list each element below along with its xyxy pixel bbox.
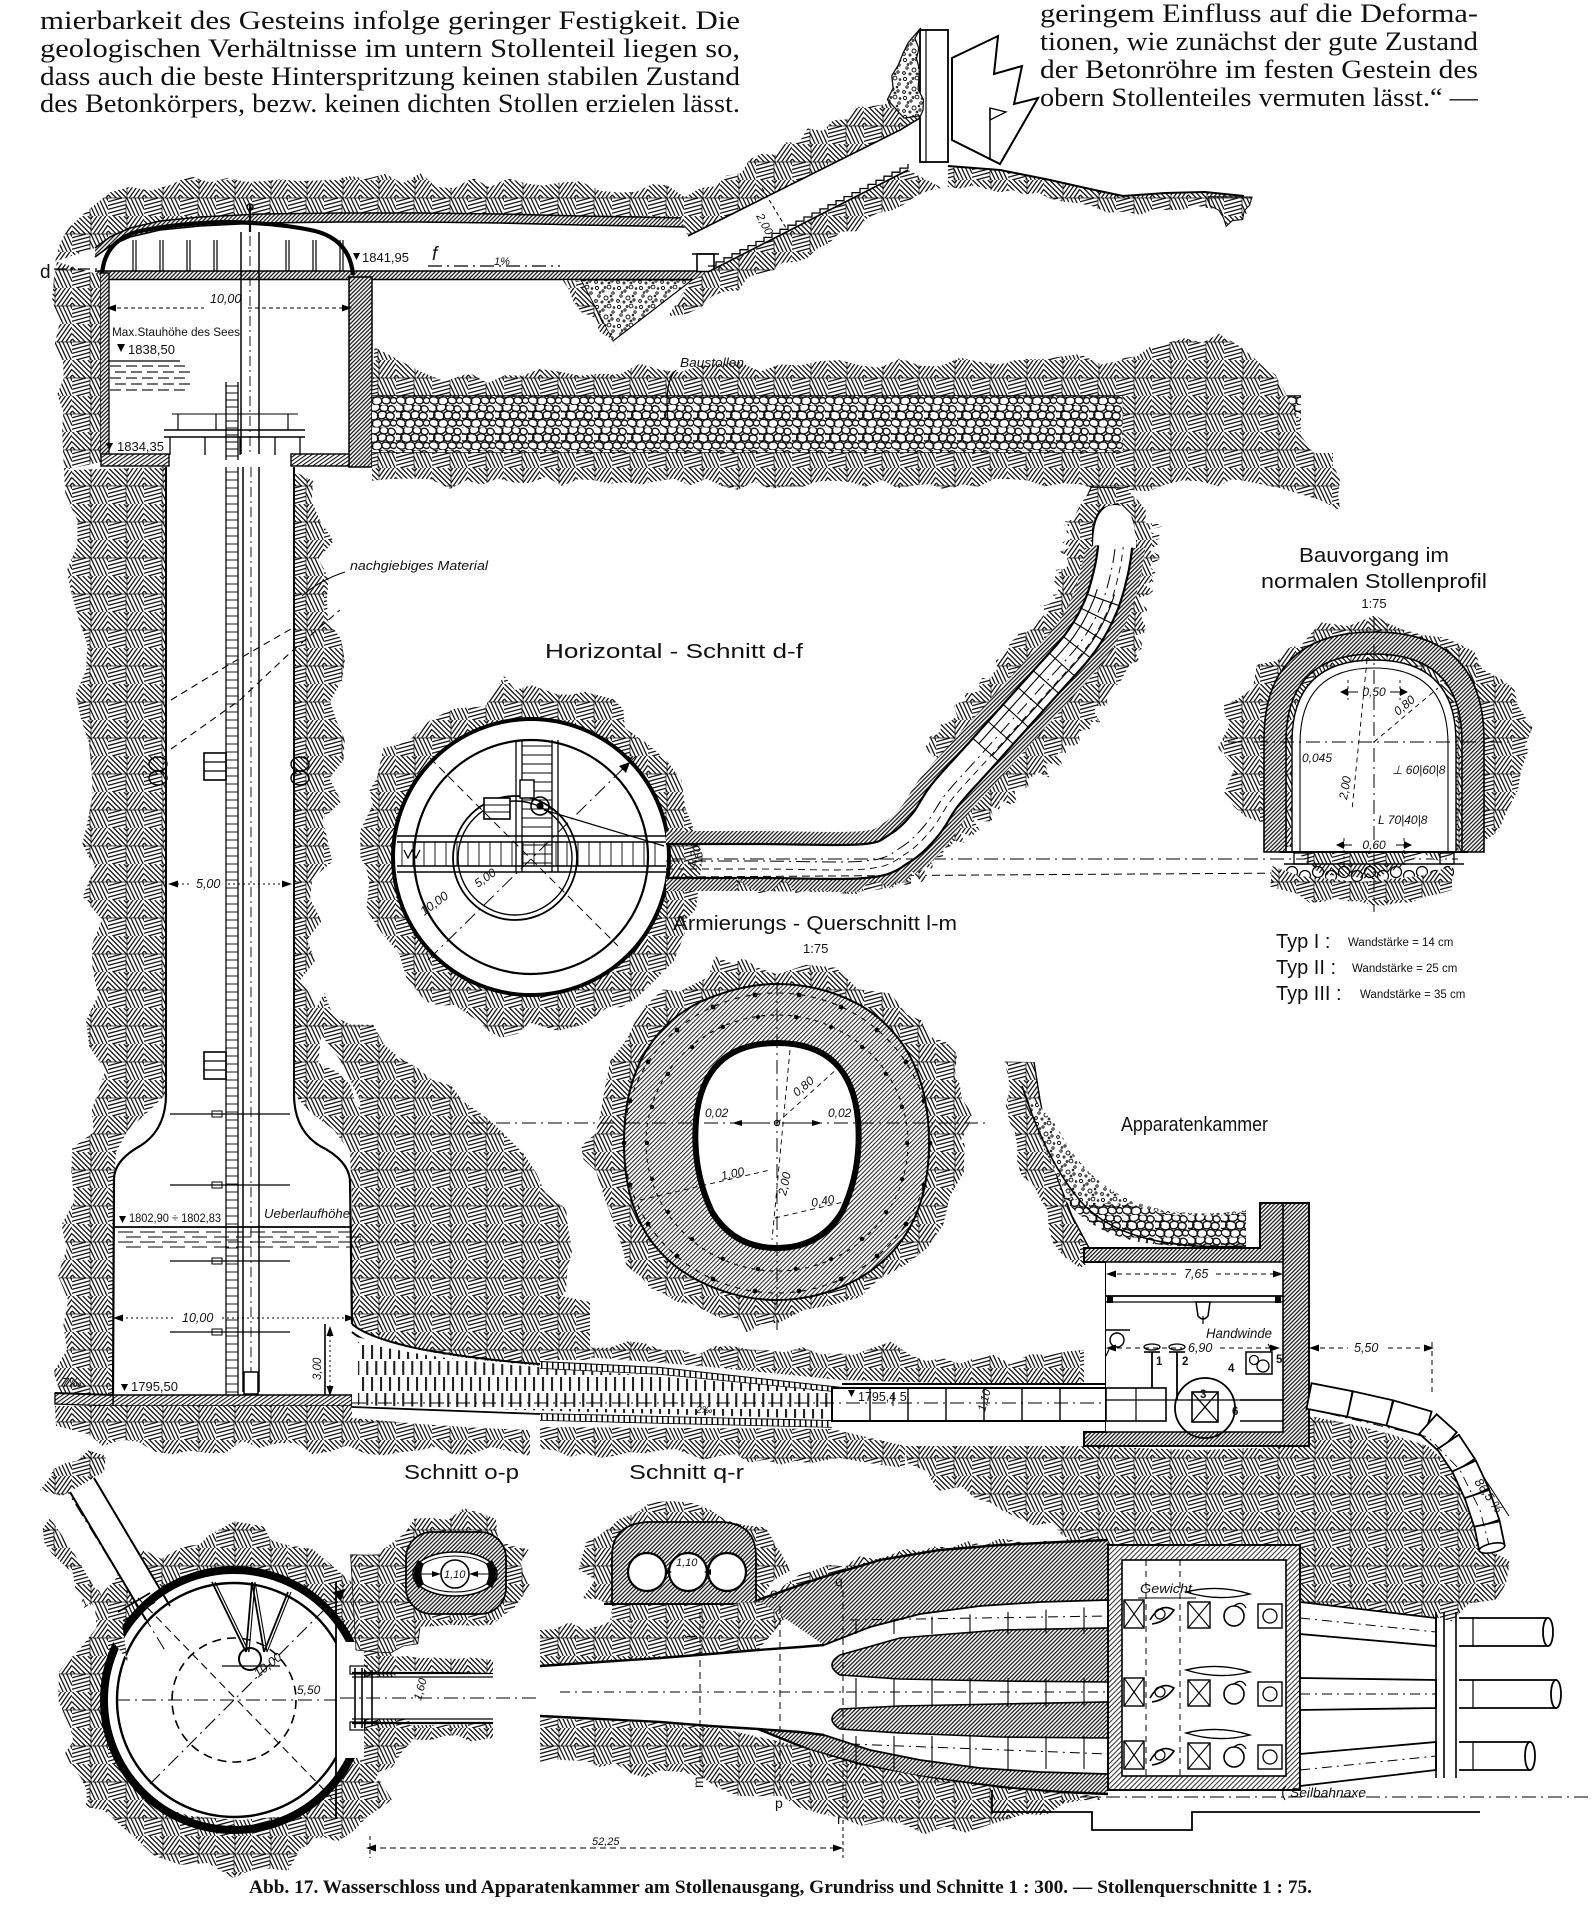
svg-text:Bauvorgang im: Bauvorgang im bbox=[1299, 545, 1449, 567]
svg-text:3: 3 bbox=[1200, 1389, 1206, 1401]
svg-text:Abb. 17. Wasserschloss und Ap: Abb. 17. Wasserschloss und Apparatenkamm… bbox=[249, 1877, 1312, 1898]
svg-text:3,00: 3,00 bbox=[312, 1357, 324, 1380]
svg-text:0,02: 0,02 bbox=[828, 1106, 852, 1120]
svg-text:7,65: 7,65 bbox=[1184, 1267, 1208, 1281]
svg-text:Horizontal - Schnitt d-f: Horizontal - Schnitt d-f bbox=[545, 641, 804, 663]
svg-text:dass auch die beste Hinterspri: dass auch die beste Hinterspritzung kein… bbox=[40, 62, 740, 91]
svg-text:Gewicht: Gewicht bbox=[1140, 1582, 1193, 1596]
svg-text:nachgiebiges Material: nachgiebiges Material bbox=[350, 558, 489, 573]
svg-text:0,045: 0,045 bbox=[1302, 751, 1332, 765]
svg-text:5,00: 5,00 bbox=[196, 877, 220, 891]
svg-text:1:75: 1:75 bbox=[1361, 596, 1386, 611]
svg-text:1841,95: 1841,95 bbox=[362, 250, 409, 265]
svg-text:Typ I :: Typ I : bbox=[1276, 931, 1330, 953]
svg-text:o: o bbox=[770, 1585, 778, 1601]
svg-text:mierbarkeit des Gesteins infol: mierbarkeit des Gesteins infolge geringe… bbox=[40, 6, 740, 35]
svg-text:6: 6 bbox=[1232, 1406, 1238, 1418]
svg-text:10,00: 10,00 bbox=[182, 1311, 213, 1325]
svg-text:L 70|40|8: L 70|40|8 bbox=[1378, 813, 1428, 827]
svg-text:r: r bbox=[837, 1811, 842, 1827]
svg-text:6,90: 6,90 bbox=[1188, 1341, 1212, 1355]
svg-text:5,50: 5,50 bbox=[1354, 1341, 1378, 1355]
svg-text:Baustollen: Baustollen bbox=[680, 355, 744, 370]
svg-text:Apparatenkammer: Apparatenkammer bbox=[1121, 1114, 1268, 1136]
svg-text:10,00: 10,00 bbox=[418, 889, 452, 919]
svg-text:Armierungs - Querschnitt l-m: Armierungs - Querschnitt l-m bbox=[673, 913, 957, 935]
svg-text:geringem Einfluss auf die Defo: geringem Einfluss auf die Deforma- bbox=[1040, 0, 1478, 28]
svg-text:Wandstärke = 25 cm: Wandstärke = 25 cm bbox=[1352, 963, 1457, 975]
svg-text:1802,90 ÷ 1802,83: 1802,90 ÷ 1802,83 bbox=[129, 1211, 221, 1225]
svg-text:2: 2 bbox=[1182, 1356, 1188, 1368]
svg-text:Wandstärke = 35 cm: Wandstärke = 35 cm bbox=[1360, 989, 1465, 1001]
svg-text:5,50: 5,50 bbox=[297, 1683, 321, 1697]
svg-text:5,00: 5,00 bbox=[472, 865, 499, 890]
svg-text:p: p bbox=[775, 1795, 783, 1811]
svg-text:des Betonkörpers, bezw. keinen: des Betonkörpers, bezw. keinen dichten S… bbox=[40, 89, 740, 118]
svg-text:1834,35: 1834,35 bbox=[117, 439, 164, 454]
svg-text:m: m bbox=[690, 1776, 706, 1788]
svg-text:Ueberlaufhöhe: Ueberlaufhöhe bbox=[264, 1207, 350, 1221]
svg-text:der Betonröhre im festen Geste: der Betonröhre im festen Gestein des bbox=[1040, 55, 1478, 84]
svg-text:1795,50: 1795,50 bbox=[131, 1379, 178, 1394]
svg-text:0,60: 0,60 bbox=[1362, 838, 1386, 852]
svg-text:geologischen Verhältnisse im u: geologischen Verhältnisse im untern Stol… bbox=[40, 34, 740, 63]
svg-text:obern Stollenteiles vermuten l: obern Stollenteiles vermuten lässt.“ — bbox=[1040, 83, 1479, 112]
svg-text:⊥ 60|60|8: ⊥ 60|60|8 bbox=[1392, 763, 1446, 777]
svg-text:52,25: 52,25 bbox=[592, 1836, 620, 1848]
svg-text:7‰: 7‰ bbox=[62, 1376, 82, 1390]
svg-text:Wandstärke = 14 cm: Wandstärke = 14 cm bbox=[1348, 937, 1453, 949]
svg-text:1:75: 1:75 bbox=[803, 941, 828, 956]
svg-text:Schnitt q-r: Schnitt q-r bbox=[629, 1462, 744, 1484]
svg-text:q: q bbox=[835, 1573, 843, 1589]
svg-text:10,00: 10,00 bbox=[210, 292, 241, 306]
svg-text:1: 1 bbox=[1156, 1356, 1163, 1368]
svg-text:5: 5 bbox=[1276, 1354, 1283, 1366]
svg-text:1,10: 1,10 bbox=[444, 1569, 466, 1581]
svg-text:f: f bbox=[432, 244, 439, 265]
svg-text:Max.Stauhöhe des Sees: Max.Stauhöhe des Sees bbox=[112, 327, 240, 339]
svg-text:0,50: 0,50 bbox=[1362, 685, 1386, 699]
svg-text:Handwinde: Handwinde bbox=[1206, 1326, 1272, 1341]
svg-text:1795,4 5: 1795,4 5 bbox=[858, 1390, 907, 1404]
svg-text:1838,50: 1838,50 bbox=[128, 342, 175, 357]
svg-text:normalen Stollenprofil: normalen Stollenprofil bbox=[1261, 571, 1487, 593]
svg-text:Typ III :: Typ III : bbox=[1276, 983, 1342, 1005]
svg-text:l: l bbox=[684, 1635, 700, 1638]
svg-text:tionen, wie zunächst der gute: tionen, wie zunächst der gute Zustand bbox=[1040, 27, 1478, 56]
svg-text:1%: 1% bbox=[494, 256, 510, 268]
svg-text:2‰: 2‰ bbox=[695, 1404, 713, 1416]
svg-text:1,10: 1,10 bbox=[676, 1557, 698, 1569]
svg-text:Schnitt o-p: Schnitt o-p bbox=[404, 1462, 519, 1484]
svg-text:d: d bbox=[40, 262, 51, 283]
svg-text:0,02: 0,02 bbox=[705, 1106, 729, 1120]
svg-text:4: 4 bbox=[1228, 1363, 1235, 1375]
svg-text:Seilbahnaxe: Seilbahnaxe bbox=[1290, 1786, 1366, 1800]
svg-text:Typ II :: Typ II : bbox=[1276, 957, 1336, 979]
